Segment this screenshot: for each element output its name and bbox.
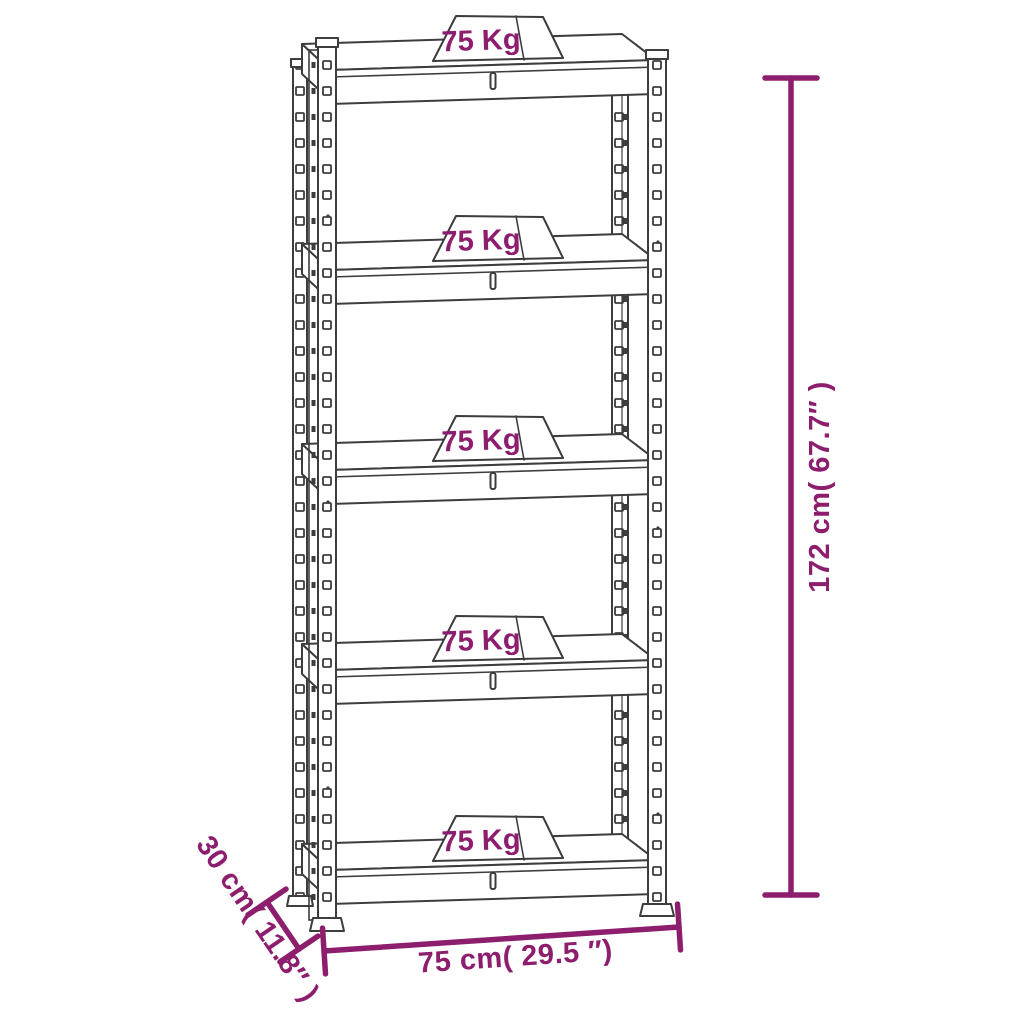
product-dimension-diagram: 75 Kg 75 Kg 75 Kg 75 Kg 75 Kg 172 cm( 67… bbox=[0, 0, 1024, 1024]
width-dimension-right-cap bbox=[678, 904, 681, 950]
weight-icon-shelf-5: 75 Kg bbox=[433, 816, 563, 861]
post-foot bbox=[310, 918, 344, 931]
beam-slot bbox=[491, 873, 496, 889]
post-foot bbox=[640, 904, 674, 916]
capacity-label: 75 Kg bbox=[441, 224, 521, 259]
capacity-label: 75 Kg bbox=[441, 624, 521, 659]
post-top-cap bbox=[646, 50, 668, 59]
beam-slot bbox=[491, 273, 496, 289]
capacity-label: 75 Kg bbox=[441, 824, 521, 859]
weight-icon-shelf-1: 75 Kg bbox=[433, 16, 563, 61]
height-dimension: 172 cm( 67.7″ ) bbox=[765, 78, 836, 895]
capacity-label: 75 Kg bbox=[441, 424, 521, 459]
post-top-cap bbox=[316, 38, 338, 47]
beam-slot bbox=[491, 673, 496, 689]
weight-icon-shelf-2: 75 Kg bbox=[433, 216, 563, 261]
width-dimension-left-cap bbox=[323, 928, 326, 974]
width-dimension: 75 cm( 29.5 ″) bbox=[323, 904, 681, 980]
beam-slot bbox=[491, 473, 496, 489]
capacity-label: 75 Kg bbox=[441, 24, 521, 59]
weight-icon-shelf-4: 75 Kg bbox=[433, 616, 563, 661]
beam-slot bbox=[491, 73, 496, 89]
shelving-rack-diagram: 75 Kg 75 Kg 75 Kg 75 Kg 75 Kg 172 cm( 67… bbox=[0, 0, 1024, 1024]
weight-icon-shelf-3: 75 Kg bbox=[433, 416, 563, 461]
height-dimension-label: 172 cm( 67.7″ ) bbox=[804, 381, 836, 593]
